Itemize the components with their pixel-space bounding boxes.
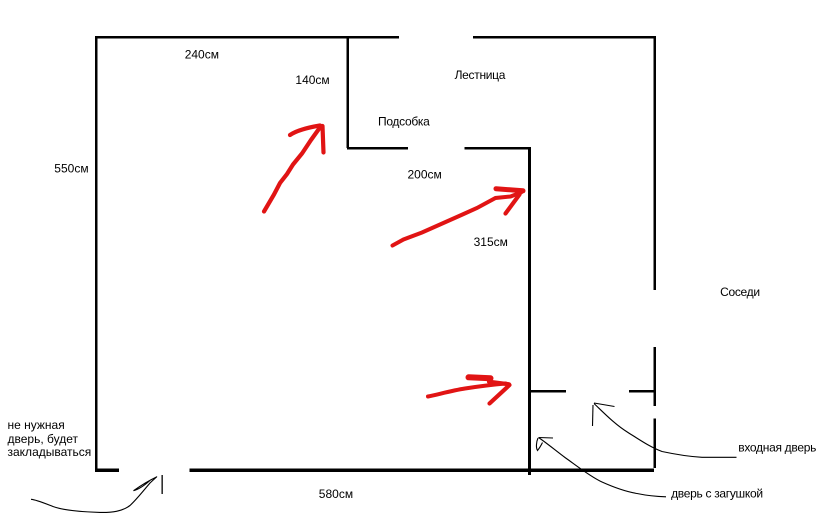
svg-text:Лестница: Лестница [455, 68, 506, 82]
svg-text:580см: 580см [319, 487, 353, 501]
svg-text:200см: 200см [408, 167, 442, 181]
svg-text:550см: 550см [54, 161, 88, 175]
svg-text:Соседи: Соседи [720, 285, 760, 299]
svg-text:дверь с загушкой: дверь с загушкой [671, 487, 763, 501]
svg-text:140см: 140см [295, 73, 329, 87]
svg-text:входная дверь: входная дверь [738, 440, 816, 454]
svg-text:Подсобка: Подсобка [378, 114, 430, 128]
svg-text:240см: 240см [185, 48, 219, 62]
svg-text:315см: 315см [474, 235, 508, 249]
